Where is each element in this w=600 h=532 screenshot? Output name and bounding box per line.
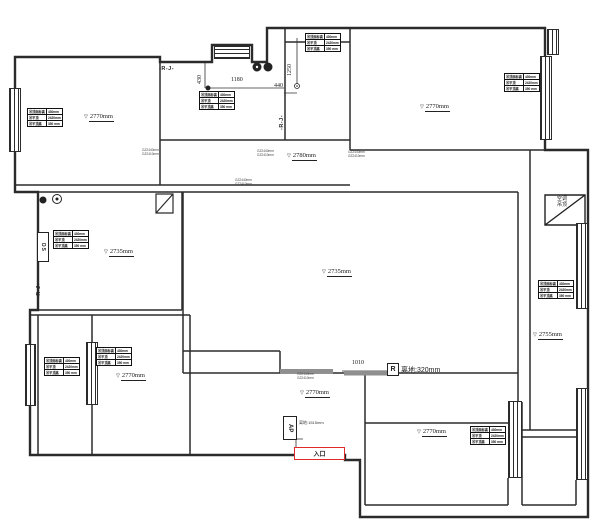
elevation-triangle-icon: ▽ <box>420 105 424 111</box>
ceiling-light-icon <box>40 197 46 203</box>
ceiling-info-table: 吊顶面标高430mm吊平顶2420mm吊平顶高350 mm <box>305 33 341 52</box>
elevation-label: ▽ 2735mm <box>104 248 134 257</box>
ceiling-info-table: 吊顶面标高430mm吊平顶2420mm吊平顶高350 mm <box>96 347 132 366</box>
ceiling-light-icon <box>264 63 272 71</box>
floor-clearance-note: 离地:320mm <box>401 365 440 375</box>
wall-height-note: GZ2440mm GZ2410mm <box>297 373 314 381</box>
dim-1180: 1180 <box>231 77 243 83</box>
elevation-triangle-icon: ▽ <box>287 154 291 160</box>
ceiling-info-table: 吊顶面标高430mm吊平顶2420mm吊平顶高350 mm <box>44 357 80 376</box>
elevation-label: ▽ 2755mm <box>533 331 563 340</box>
dim-1250: 1250 <box>287 64 293 76</box>
window-symbol <box>214 46 250 59</box>
ceiling-info-table: 吊顶面标高430mm吊平顶2420mm吊平顶高350 mm <box>27 108 63 127</box>
wall-height-note: GZ2440mm GZ2410mm <box>257 150 274 158</box>
ap-panel-label: AP <box>287 424 293 432</box>
rj-label-vertical: -R-J- <box>36 283 42 298</box>
elevation-label: ▽ 2770mm <box>84 113 114 122</box>
elevation-triangle-icon: ▽ <box>104 250 108 256</box>
wall-height-note: GZ2440mm GZ2410mm <box>142 149 159 157</box>
dimension-lines <box>205 38 398 371</box>
elevation-label: ▽ 2735mm <box>322 268 352 277</box>
distribution-box: DS <box>37 232 49 262</box>
door-corner-symbol <box>156 194 173 213</box>
rj-label-horizontal: -R-J- <box>159 66 174 72</box>
dim-440: 440 <box>274 83 283 89</box>
window-symbol <box>547 29 559 55</box>
ac-ceiling-label: 空调 吊顶 <box>557 197 567 208</box>
r-switch-box: R <box>387 363 399 376</box>
window-symbol <box>540 56 552 140</box>
ceiling-info-table: 吊顶面标高430mm吊平顶2420mm吊平顶高350 mm <box>504 73 540 92</box>
window-symbol <box>508 401 522 478</box>
ceiling-symbols <box>40 63 300 204</box>
ceiling-info-table: 吊顶面标高430mm吊平顶2420mm吊平顶高350 mm <box>53 230 89 249</box>
dim-430: 430 <box>197 75 203 84</box>
elevation-triangle-icon: ▽ <box>417 430 421 436</box>
dim-node-icon <box>206 86 210 90</box>
entrance-label: 入口 <box>313 449 325 458</box>
elevation-triangle-icon: ▽ <box>533 333 537 339</box>
window-symbol <box>25 344 36 406</box>
distribution-box-label: DS <box>40 243 46 252</box>
entrance-marker: 入口 <box>294 447 345 460</box>
wall-height-note: GZ2440mm GZ2410mm <box>348 151 365 159</box>
floor-plan-canvas: 430 1180 440 1250 1010 -R-J- -R-J- -R-J-… <box>0 0 600 532</box>
window-symbol <box>576 388 588 480</box>
wall-height-note: GZ2440mm GZ2410mm <box>235 179 252 187</box>
elevation-triangle-icon: ▽ <box>116 374 120 380</box>
dim-1010: 1010 <box>352 360 364 366</box>
elevation-triangle-icon: ▽ <box>322 270 326 276</box>
rj-label-vertical: -R-J- <box>279 115 285 130</box>
elevation-triangle-icon: ▽ <box>84 115 88 121</box>
ap-panel-box: AP <box>283 416 297 440</box>
elevation-label: ▽ 2770mm <box>420 103 450 112</box>
ceiling-info-table: 吊顶面标高430mm吊平顶2420mm吊平顶高350 mm <box>538 280 574 299</box>
ceiling-info-table: 吊顶面标高430mm吊平顶2420mm吊平顶高350 mm <box>470 426 506 445</box>
elevation-triangle-icon: ▽ <box>300 391 304 397</box>
window-symbol <box>9 88 21 152</box>
elevation-label: ▽ 2770mm <box>116 372 146 381</box>
ap-clearance-note: 离地:1515mm <box>299 420 324 426</box>
window-symbol <box>576 223 588 309</box>
elevation-label: ▽ 2770mm <box>300 389 330 398</box>
elevation-label: ▽ 2770mm <box>417 428 447 437</box>
elevation-label: ▽ 2780mm <box>287 152 317 161</box>
ceiling-info-table: 吊顶面标高430mm吊平顶2420mm吊平顶高350 mm <box>199 91 235 110</box>
r-switch-letter: R <box>390 366 395 373</box>
